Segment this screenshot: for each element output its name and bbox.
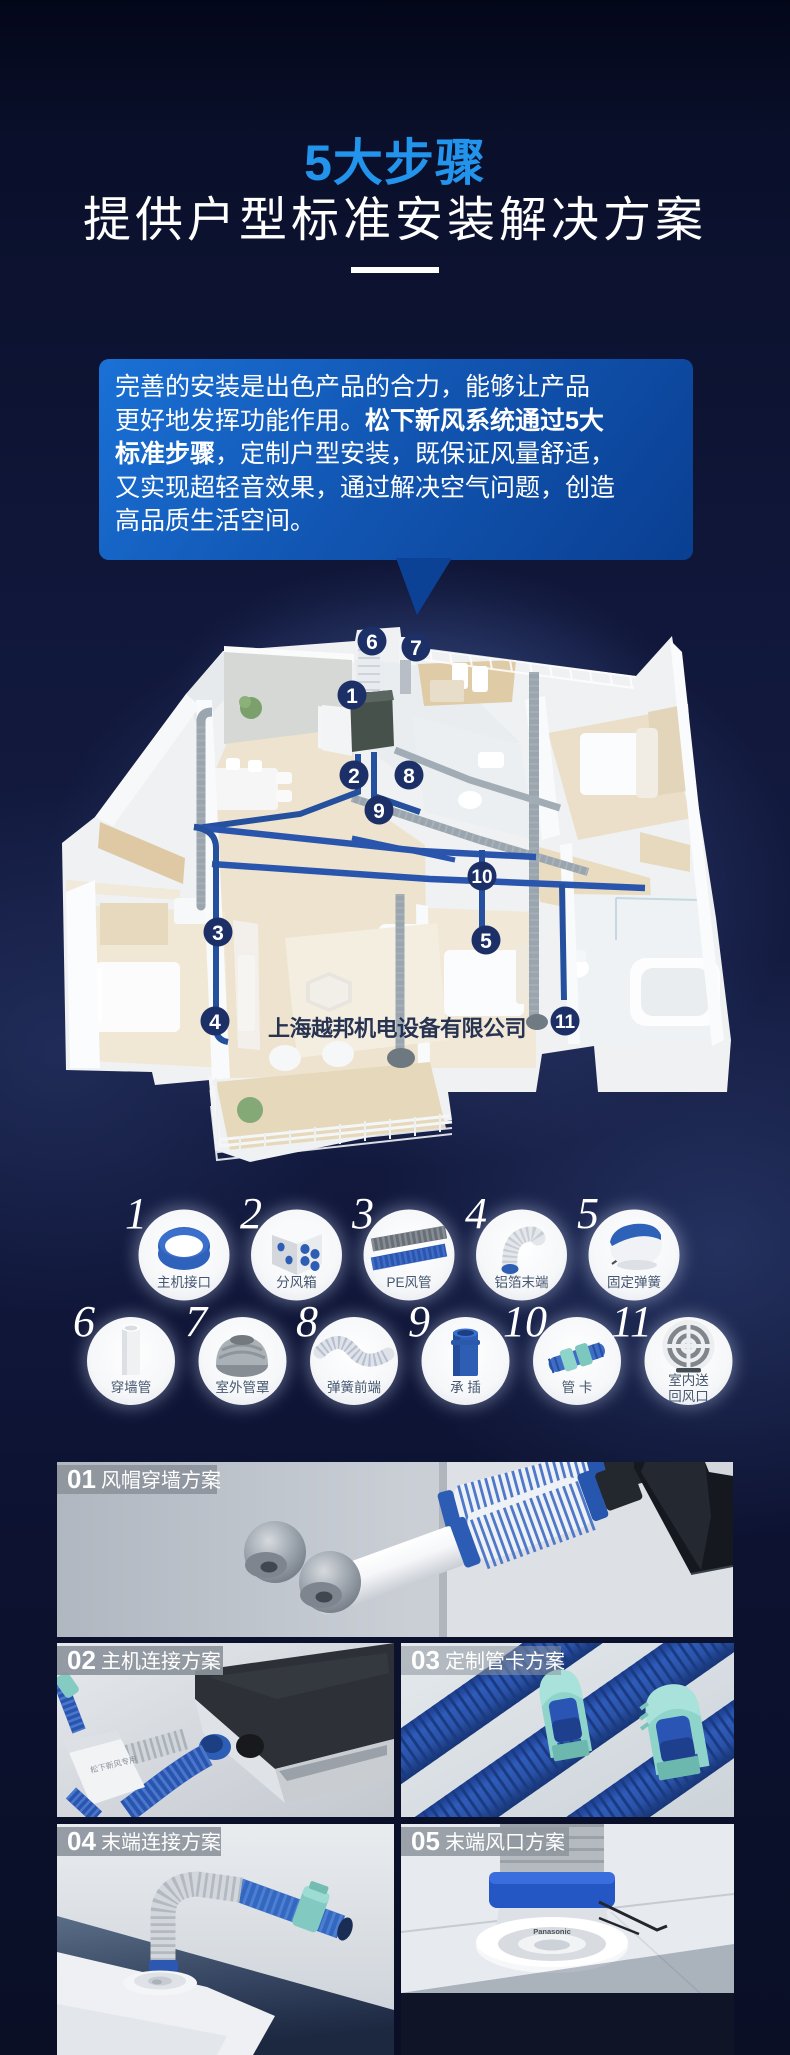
svg-text:弹簧前端: 弹簧前端 bbox=[327, 1379, 381, 1395]
svg-text:固定弹簧: 固定弹簧 bbox=[607, 1275, 661, 1290]
svg-text:7: 7 bbox=[185, 1297, 209, 1346]
svg-text:PE风管: PE风管 bbox=[386, 1275, 431, 1290]
svg-text:1: 1 bbox=[346, 685, 358, 708]
svg-text:末端连接方案: 末端连接方案 bbox=[101, 1831, 221, 1854]
svg-text:3: 3 bbox=[351, 1189, 374, 1238]
svg-text:室外管罩: 室外管罩 bbox=[216, 1379, 270, 1395]
svg-text:主机接口: 主机接口 bbox=[157, 1274, 211, 1290]
svg-text:4: 4 bbox=[465, 1189, 487, 1238]
svg-text:8: 8 bbox=[403, 765, 415, 788]
svg-text:上海越邦机电设备有限公司: 上海越邦机电设备有限公司 bbox=[268, 1016, 526, 1041]
svg-text:末端风口方案: 末端风口方案 bbox=[445, 1831, 565, 1854]
svg-text:10: 10 bbox=[503, 1297, 547, 1346]
svg-text:承 插: 承 插 bbox=[450, 1380, 481, 1395]
svg-text:11: 11 bbox=[555, 1012, 576, 1033]
svg-text:6: 6 bbox=[366, 631, 378, 654]
svg-text:05: 05 bbox=[411, 1826, 440, 1856]
svg-text:3: 3 bbox=[212, 922, 224, 945]
svg-text:主机连接方案: 主机连接方案 bbox=[101, 1650, 221, 1673]
svg-text:2: 2 bbox=[348, 765, 360, 788]
svg-text:9: 9 bbox=[373, 800, 385, 823]
svg-text:定制管卡方案: 定制管卡方案 bbox=[445, 1650, 565, 1673]
svg-text:1: 1 bbox=[125, 1189, 147, 1238]
svg-text:2: 2 bbox=[240, 1189, 262, 1238]
svg-text:01: 01 bbox=[67, 1464, 96, 1494]
svg-text:5: 5 bbox=[480, 930, 492, 953]
svg-text:5: 5 bbox=[577, 1189, 599, 1238]
svg-text:铝箔末端: 铝箔末端 bbox=[495, 1275, 549, 1290]
svg-text:03: 03 bbox=[411, 1645, 440, 1675]
svg-text:风帽穿墙方案: 风帽穿墙方案 bbox=[101, 1469, 221, 1492]
svg-text:分风箱: 分风箱 bbox=[276, 1275, 317, 1290]
svg-text:04: 04 bbox=[67, 1826, 96, 1856]
svg-text:7: 7 bbox=[410, 637, 422, 660]
svg-text:穿墙管: 穿墙管 bbox=[111, 1380, 152, 1395]
svg-text:02: 02 bbox=[67, 1645, 96, 1675]
svg-text:6: 6 bbox=[73, 1297, 95, 1346]
svg-text:8: 8 bbox=[296, 1297, 318, 1346]
svg-text:室内送: 室内送 bbox=[668, 1372, 709, 1388]
svg-text:回风口: 回风口 bbox=[668, 1389, 709, 1404]
svg-text:10: 10 bbox=[471, 867, 492, 888]
svg-text:Panasonic: Panasonic bbox=[533, 1927, 571, 1936]
svg-text:11: 11 bbox=[611, 1297, 652, 1346]
svg-text:管 卡: 管 卡 bbox=[562, 1380, 593, 1395]
svg-text:4: 4 bbox=[209, 1011, 221, 1034]
svg-text:9: 9 bbox=[408, 1297, 430, 1346]
